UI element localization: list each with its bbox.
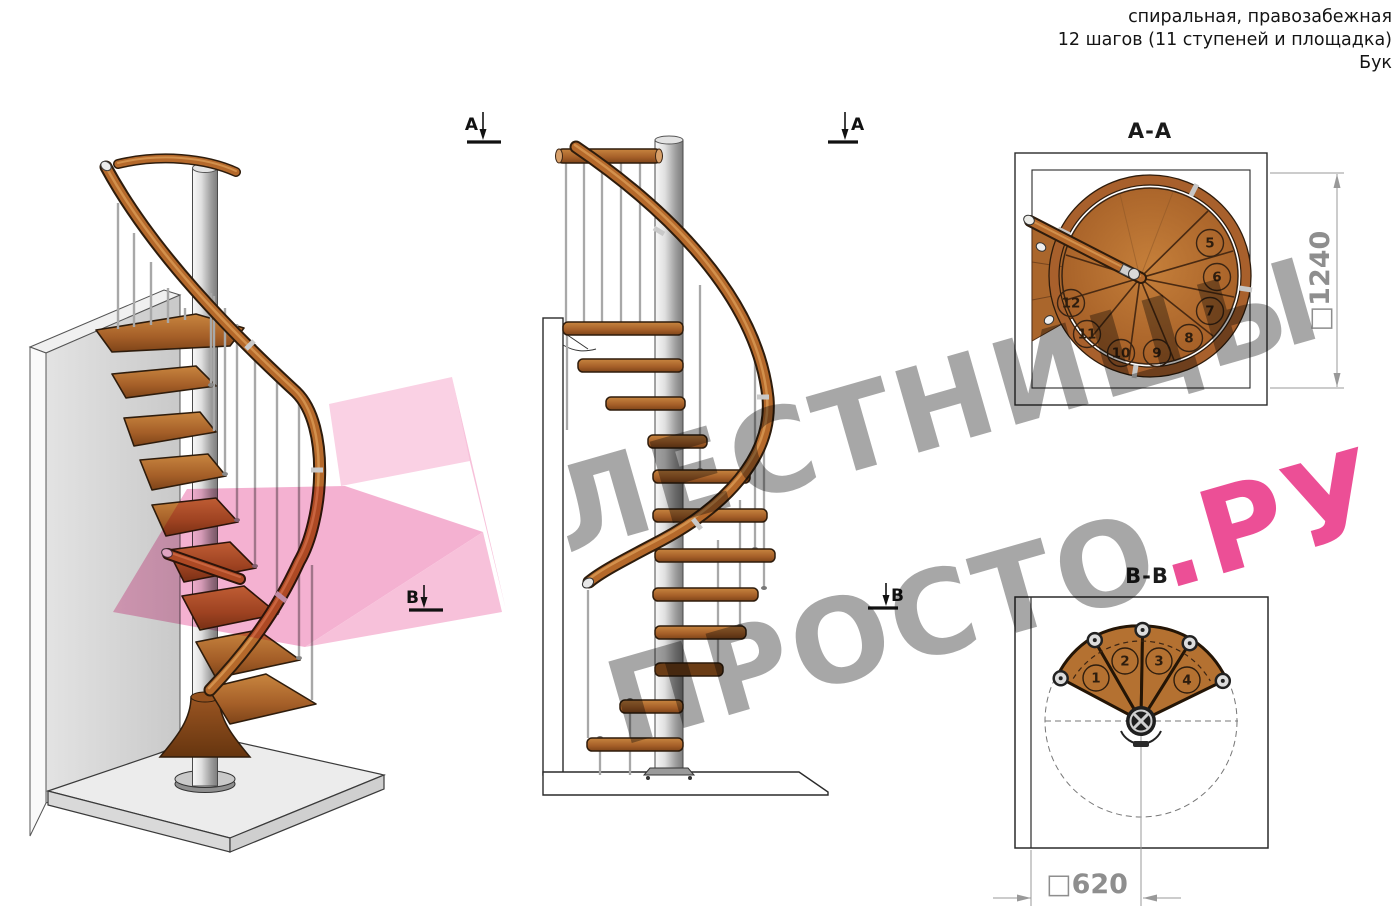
bb-number: 2 [1120,654,1129,670]
aa-number: 9 [1152,346,1161,362]
bb-number: 4 [1182,673,1191,689]
aa-number: 10 [1112,346,1131,362]
section-aa-view: A-A [1015,119,1344,405]
title-line-type: спиральная, правозабежная [1058,6,1392,29]
section-bb-view: B-B [993,564,1268,906]
aa-dimension-label: □1240 [1305,231,1336,332]
aa-number: 8 [1184,331,1193,347]
aa-number: 7 [1205,304,1214,320]
title-line-steps: 12 шагов (11 ступеней и площадка) [1058,29,1392,52]
isometric-view [30,157,506,852]
section-bb-label: B-B [1125,564,1169,588]
aa-number: 5 [1205,236,1214,252]
iso-top-rail [118,157,236,172]
bb-number: 1 [1091,671,1100,687]
aa-dimension: □1240 [1270,173,1344,388]
marker-a-letter: A [851,115,865,135]
section-marker-a-left: A [465,112,501,142]
section-aa-label: A-A [1128,119,1172,143]
bb-dimension-label: □620 [1046,869,1128,900]
section-marker-a-right: A [828,112,865,142]
front-elevation-view [543,136,828,795]
bb-number: 3 [1154,654,1163,670]
marker-b-letter: B [406,588,419,608]
aa-number: 6 [1212,270,1221,286]
technical-drawing: A-A [0,0,1400,911]
marker-b-letter: B [891,586,904,606]
aa-number: 11 [1078,327,1097,343]
title-block: спиральная, правозабежная 12 шагов (11 с… [1058,6,1392,75]
aa-number: 12 [1062,296,1081,312]
drawing-canvas: спиральная, правозабежная 12 шагов (11 с… [0,0,1400,911]
title-line-material: Бук [1058,52,1392,75]
bb-dimension: □620 [993,850,1181,906]
section-marker-b-right: B [868,583,904,608]
marker-a-letter: A [465,115,479,135]
